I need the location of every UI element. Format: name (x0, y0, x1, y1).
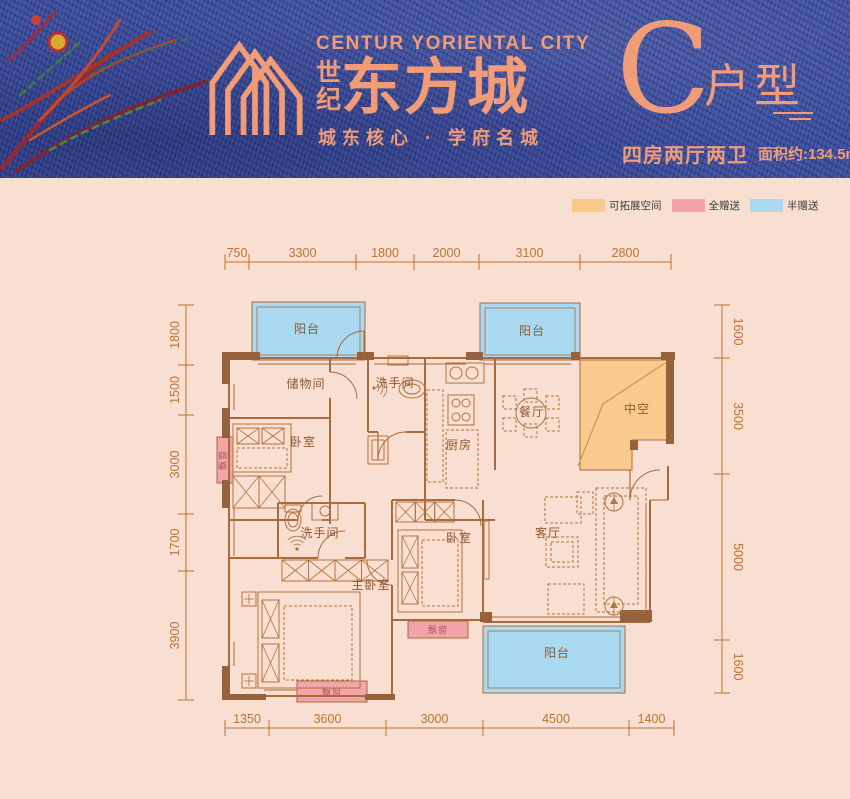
room-label-bedroom-middle: 卧室 (446, 530, 472, 545)
brand-cn-small: 世 纪 (316, 60, 341, 114)
unit-type-letter: C (616, 6, 711, 134)
unit-type-suffix: 户型 (704, 50, 804, 116)
room-label-storage-room: 储物间 (286, 376, 325, 391)
dimension-value: 1800 (168, 321, 182, 349)
dimension-value: 1500 (168, 376, 182, 404)
room-label-bay-window-west: 飘窗 (217, 450, 228, 470)
dimension-value: 4500 (542, 712, 570, 726)
room-label-bedroom-north-west: 卧室 (290, 434, 316, 449)
brand-name-cn: 世 纪 东方城 (316, 56, 530, 118)
dimension-value: 3900 (168, 622, 182, 650)
dimension-value: 1700 (168, 529, 182, 557)
header-banner: CENTUR YORIENTAL CITY 世 纪 东方城 城东核心 · 学府名… (0, 0, 850, 178)
dimension-value: 2000 (433, 246, 461, 260)
room-label-bay-window-south: 飘窗 (322, 686, 342, 697)
dimension-value: 1350 (233, 712, 261, 726)
floor-plan: 7503300180020003100280013503600300045001… (0, 178, 850, 799)
dimension-value: 1800 (371, 246, 399, 260)
wall-segment (466, 352, 483, 360)
wall-segment (222, 480, 230, 508)
brand-logo-icon (204, 30, 308, 136)
dimension-value: 2800 (612, 246, 640, 260)
room-label-kitchen: 厨房 (446, 437, 472, 452)
dimension-value: 3000 (168, 451, 182, 479)
door-arc (455, 500, 481, 526)
embroidery-branch-decoration (0, 0, 225, 172)
wall-segment (630, 440, 638, 450)
door-arc (298, 496, 322, 520)
dimension-value: 1600 (731, 318, 745, 346)
room-label-bathroom-north: 洗手间 (375, 376, 414, 390)
room-label-bay-window-middle: 飘窗 (428, 624, 448, 635)
wall-segment (357, 352, 374, 360)
dimension-value: 3000 (421, 712, 449, 726)
wall-segment (222, 352, 230, 384)
dimension-value: 3300 (289, 246, 317, 260)
room-label-void-atrium: 中空 (624, 401, 650, 416)
wall-segment (571, 352, 580, 360)
brand-cn-small-bottom: 纪 (316, 87, 341, 114)
unit-decoration-line (773, 112, 813, 114)
dimension-value: 750 (227, 246, 248, 260)
unit-decoration-line (789, 118, 811, 120)
brand-tagline: 城东核心 · 学府名城 (318, 124, 544, 150)
wall-segment (222, 694, 266, 700)
wall-segment (666, 358, 674, 444)
room-label-dining-room: 餐厅 (519, 404, 545, 419)
wall-segment (365, 694, 395, 700)
dimension-value: 3100 (516, 246, 544, 260)
brand-name-en: CENTUR YORIENTAL CITY (316, 33, 590, 55)
door-arc (330, 372, 357, 399)
room-label-bathroom-south: 洗手间 (300, 526, 339, 540)
brand-cn-small-top: 世 (316, 60, 341, 87)
room-label-balcony-south: 阳台 (544, 645, 570, 660)
room-label-balcony-north-east: 阳台 (519, 323, 545, 338)
room-label-living-room: 客厅 (535, 525, 561, 540)
dimension-value: 3600 (314, 712, 342, 726)
room-label-master-bedroom: 主卧室 (351, 577, 390, 592)
dimension-value: 3500 (731, 402, 745, 430)
room-label-balcony-north-west: 阳台 (294, 321, 320, 336)
dimension-value: 5000 (731, 543, 745, 571)
dimension-value: 1600 (731, 653, 745, 681)
wall-segment (222, 408, 230, 438)
page: CENTUR YORIENTAL CITY 世 纪 东方城 城东核心 · 学府名… (0, 0, 850, 799)
dimension-value: 1400 (638, 712, 666, 726)
wall-segment (480, 612, 492, 622)
unit-room-count: 四房两厅两卫 (622, 139, 748, 168)
brand-cn-main: 东方城 (341, 56, 530, 118)
unit-area: 面积约:134.5m² (758, 143, 850, 164)
